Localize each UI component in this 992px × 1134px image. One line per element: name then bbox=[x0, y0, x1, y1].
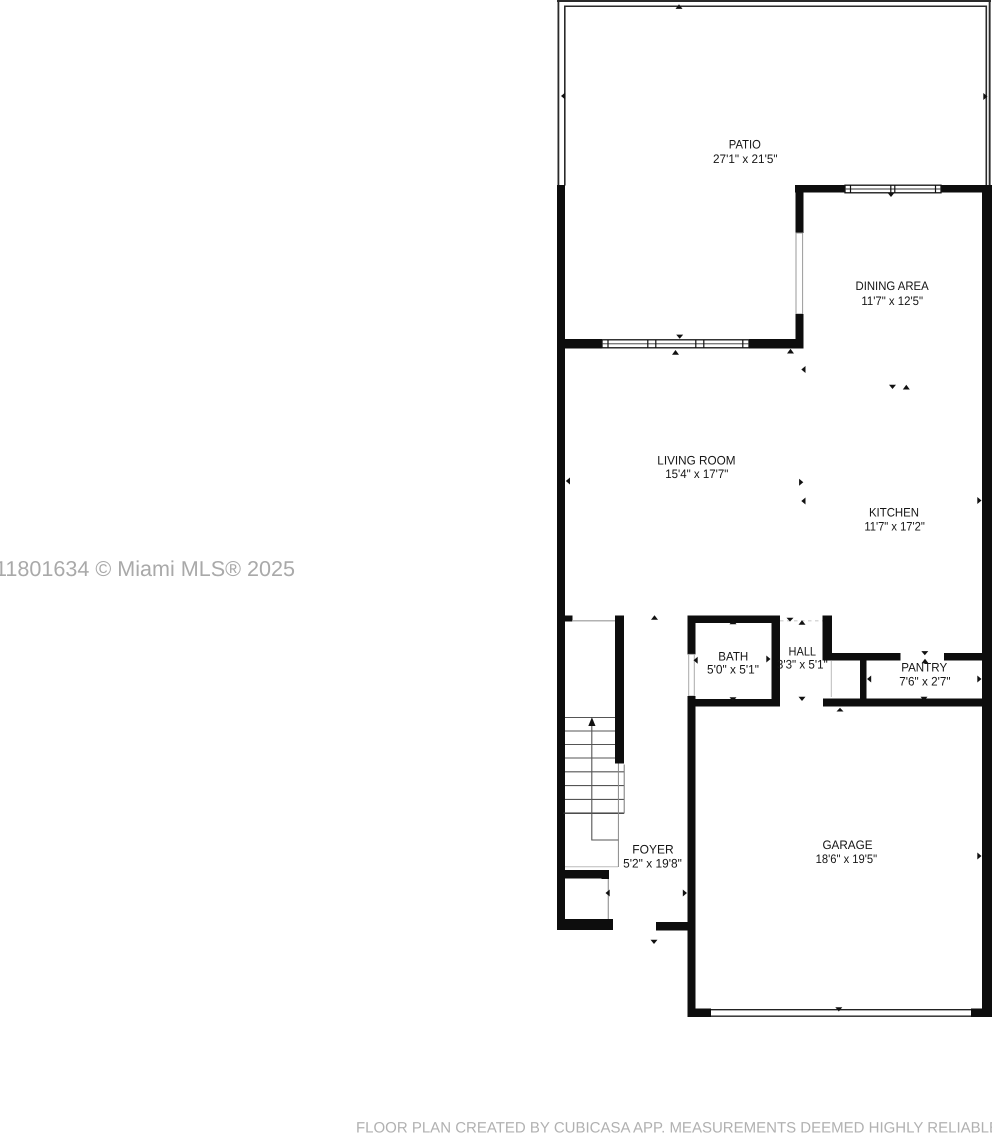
svg-text:DINING AREA: DINING AREA bbox=[856, 279, 930, 293]
svg-text:GARAGE: GARAGE bbox=[822, 838, 872, 852]
svg-text:PATIO: PATIO bbox=[729, 138, 761, 152]
svg-text:27'1" x 21'5": 27'1" x 21'5" bbox=[713, 152, 778, 166]
svg-text:11'7" x 17'2": 11'7" x 17'2" bbox=[864, 520, 925, 534]
svg-text:11801634 © Miami MLS® 2025: 11801634 © Miami MLS® 2025 bbox=[0, 557, 295, 581]
svg-text:LIVING ROOM: LIVING ROOM bbox=[657, 453, 735, 467]
svg-text:BATH: BATH bbox=[718, 649, 748, 663]
svg-text:PANTRY: PANTRY bbox=[901, 661, 947, 675]
svg-text:FLOOR PLAN CREATED BY CUBICASA: FLOOR PLAN CREATED BY CUBICASA APP. MEAS… bbox=[356, 1120, 992, 1134]
svg-text:3'3" x 5'1": 3'3" x 5'1" bbox=[777, 658, 828, 672]
svg-text:KITCHEN: KITCHEN bbox=[869, 505, 919, 519]
svg-text:18'6" x 19'5": 18'6" x 19'5" bbox=[816, 852, 878, 866]
svg-text:15'4" x 17'7": 15'4" x 17'7" bbox=[665, 467, 728, 481]
svg-text:FOYER: FOYER bbox=[632, 842, 674, 856]
svg-text:5'0" x 5'1": 5'0" x 5'1" bbox=[707, 662, 759, 676]
svg-text:7'6" x 2'7": 7'6" x 2'7" bbox=[899, 674, 950, 688]
svg-text:5'2" x 19'8": 5'2" x 19'8" bbox=[623, 857, 682, 871]
svg-text:HALL: HALL bbox=[789, 645, 817, 659]
svg-text:11'7" x 12'5": 11'7" x 12'5" bbox=[861, 294, 923, 308]
